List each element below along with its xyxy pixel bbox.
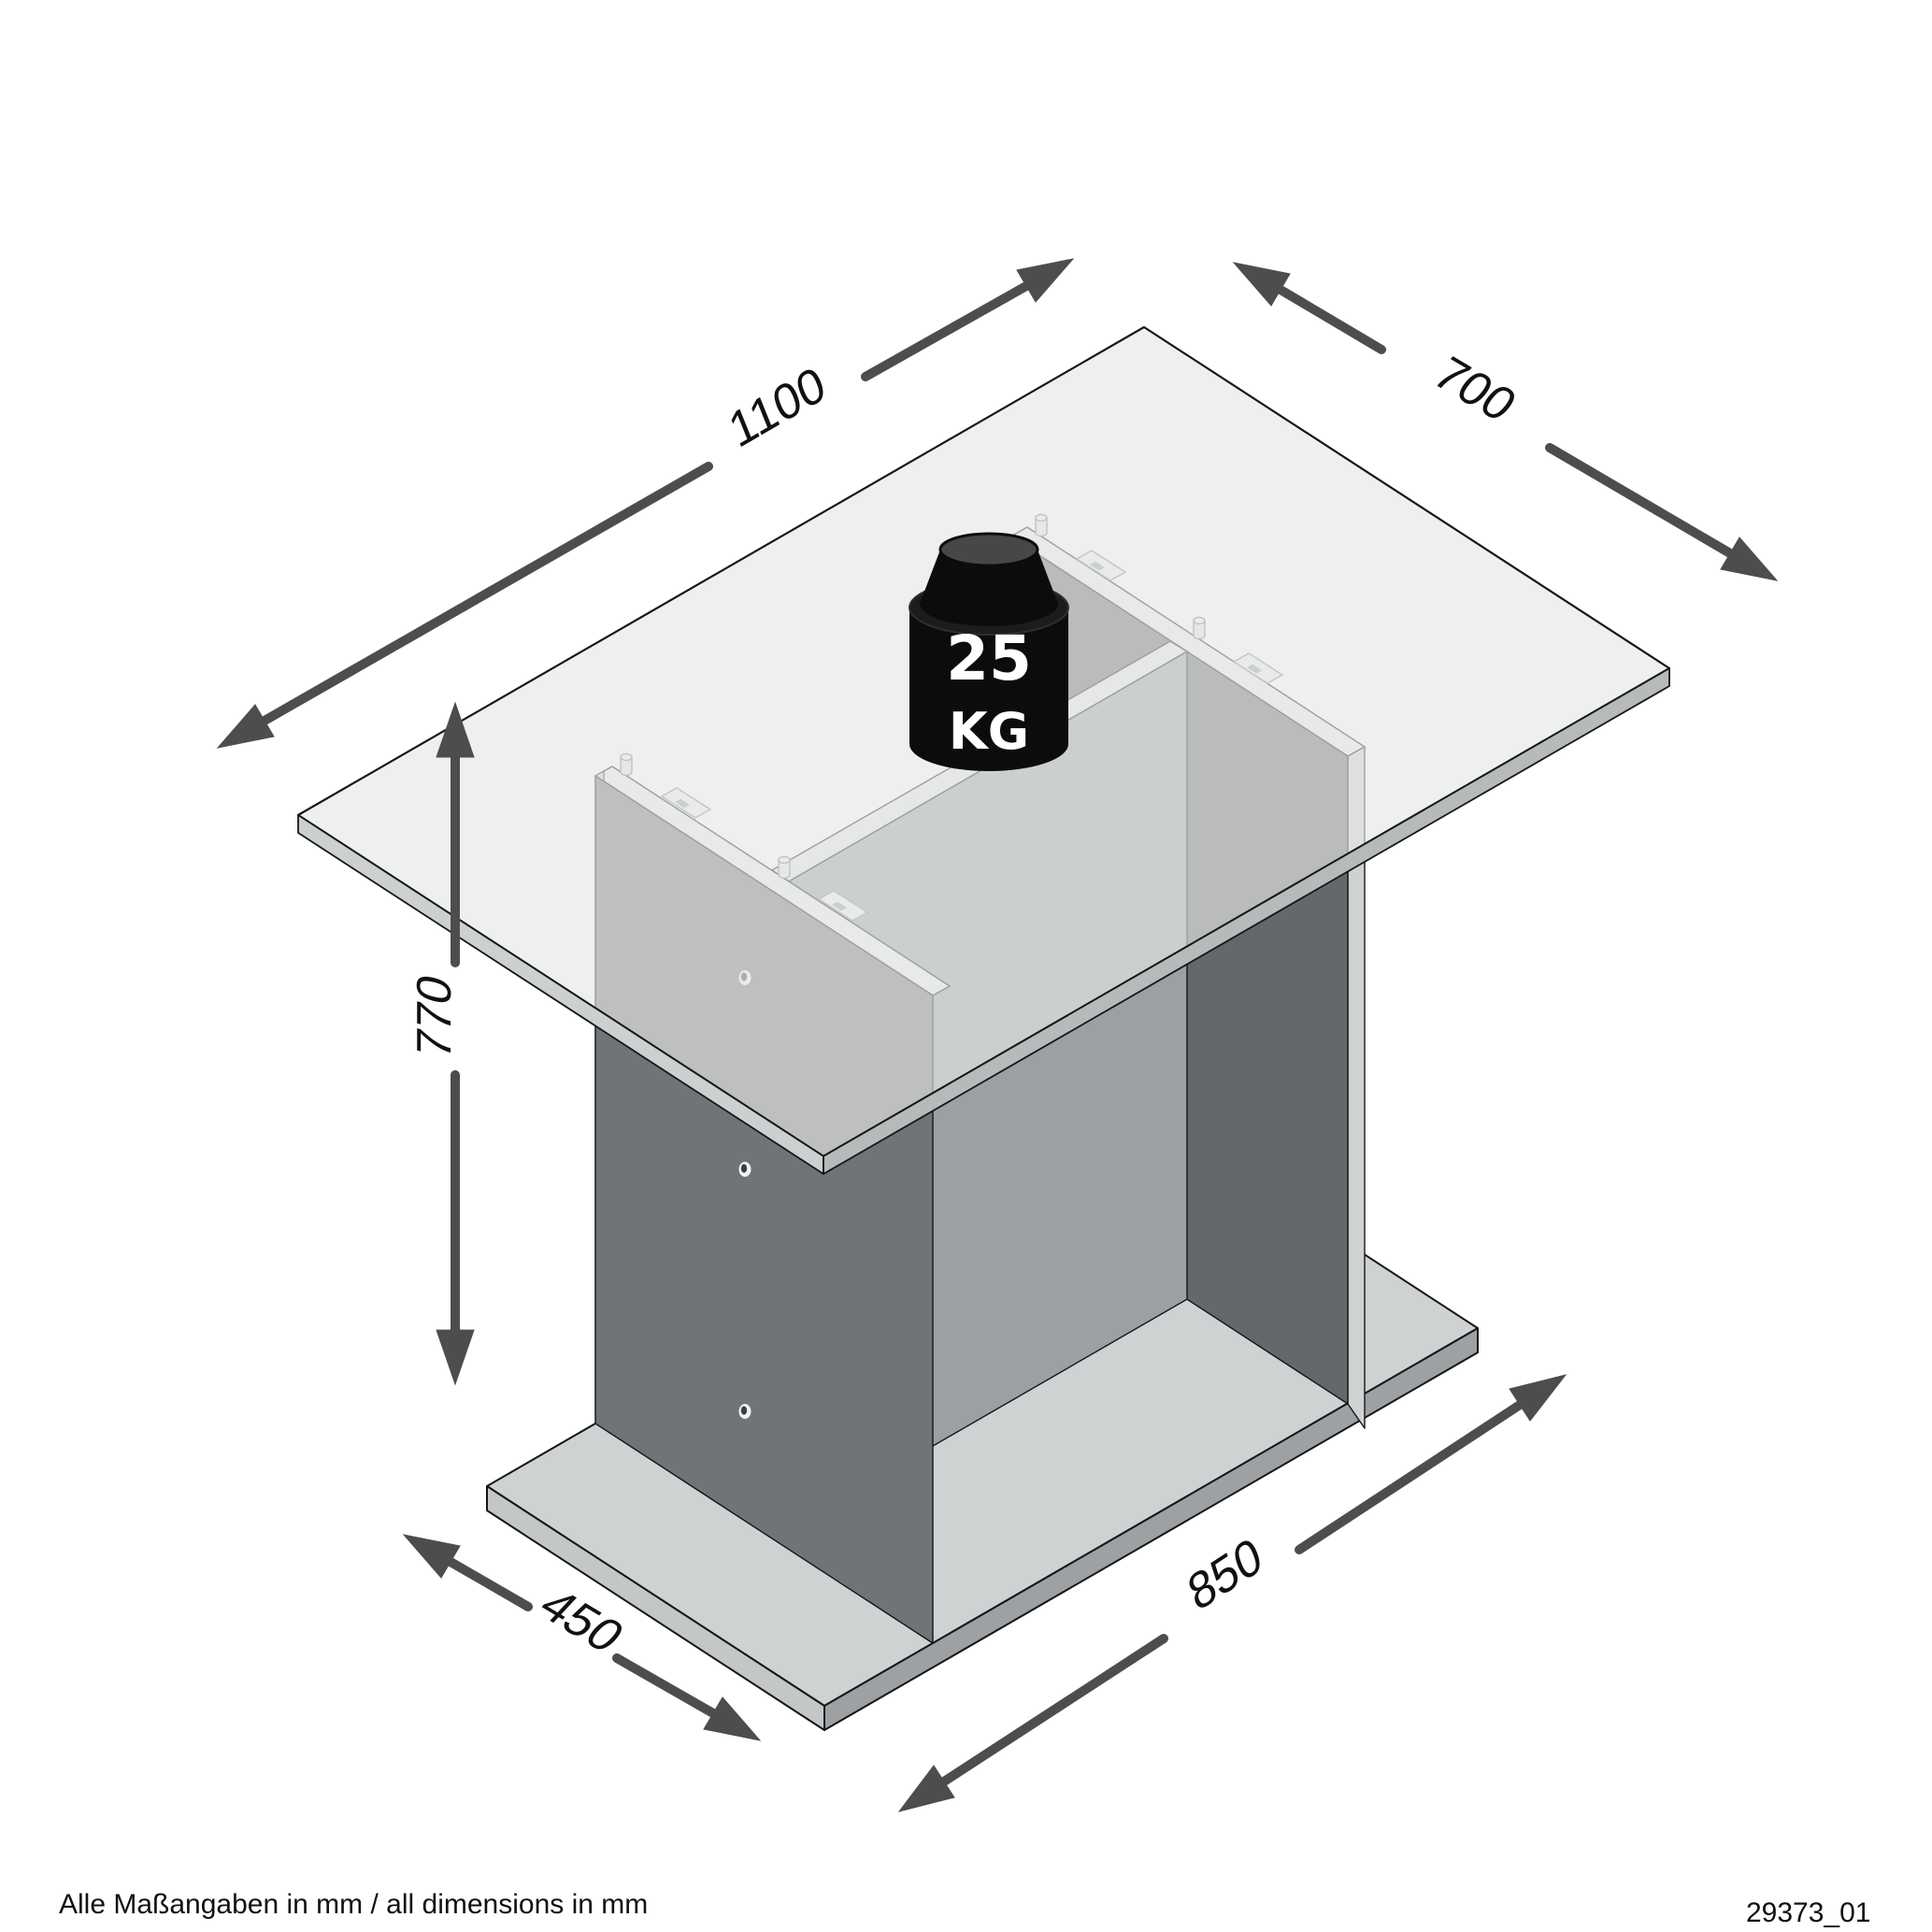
weight-value: 25	[946, 623, 1032, 694]
weight-badge: 25 KG	[909, 534, 1068, 771]
technical-drawing-page: 25 KG 1100 700 770 450 850	[0, 0, 1932, 1932]
weight-knob-top	[940, 534, 1038, 565]
dimension-label-table-height: 770	[408, 969, 462, 1064]
drawing-number: 29373_01	[1746, 1897, 1870, 1928]
screw-hole	[739, 1162, 751, 1177]
table-dimension-diagram: 25 KG 1100 700 770 450 850	[0, 0, 1932, 1932]
footer-note: Alle Maßangaben in mm / all dimensions i…	[59, 1889, 648, 1920]
screw-hole	[739, 1404, 751, 1419]
weight-unit: KG	[949, 702, 1029, 761]
